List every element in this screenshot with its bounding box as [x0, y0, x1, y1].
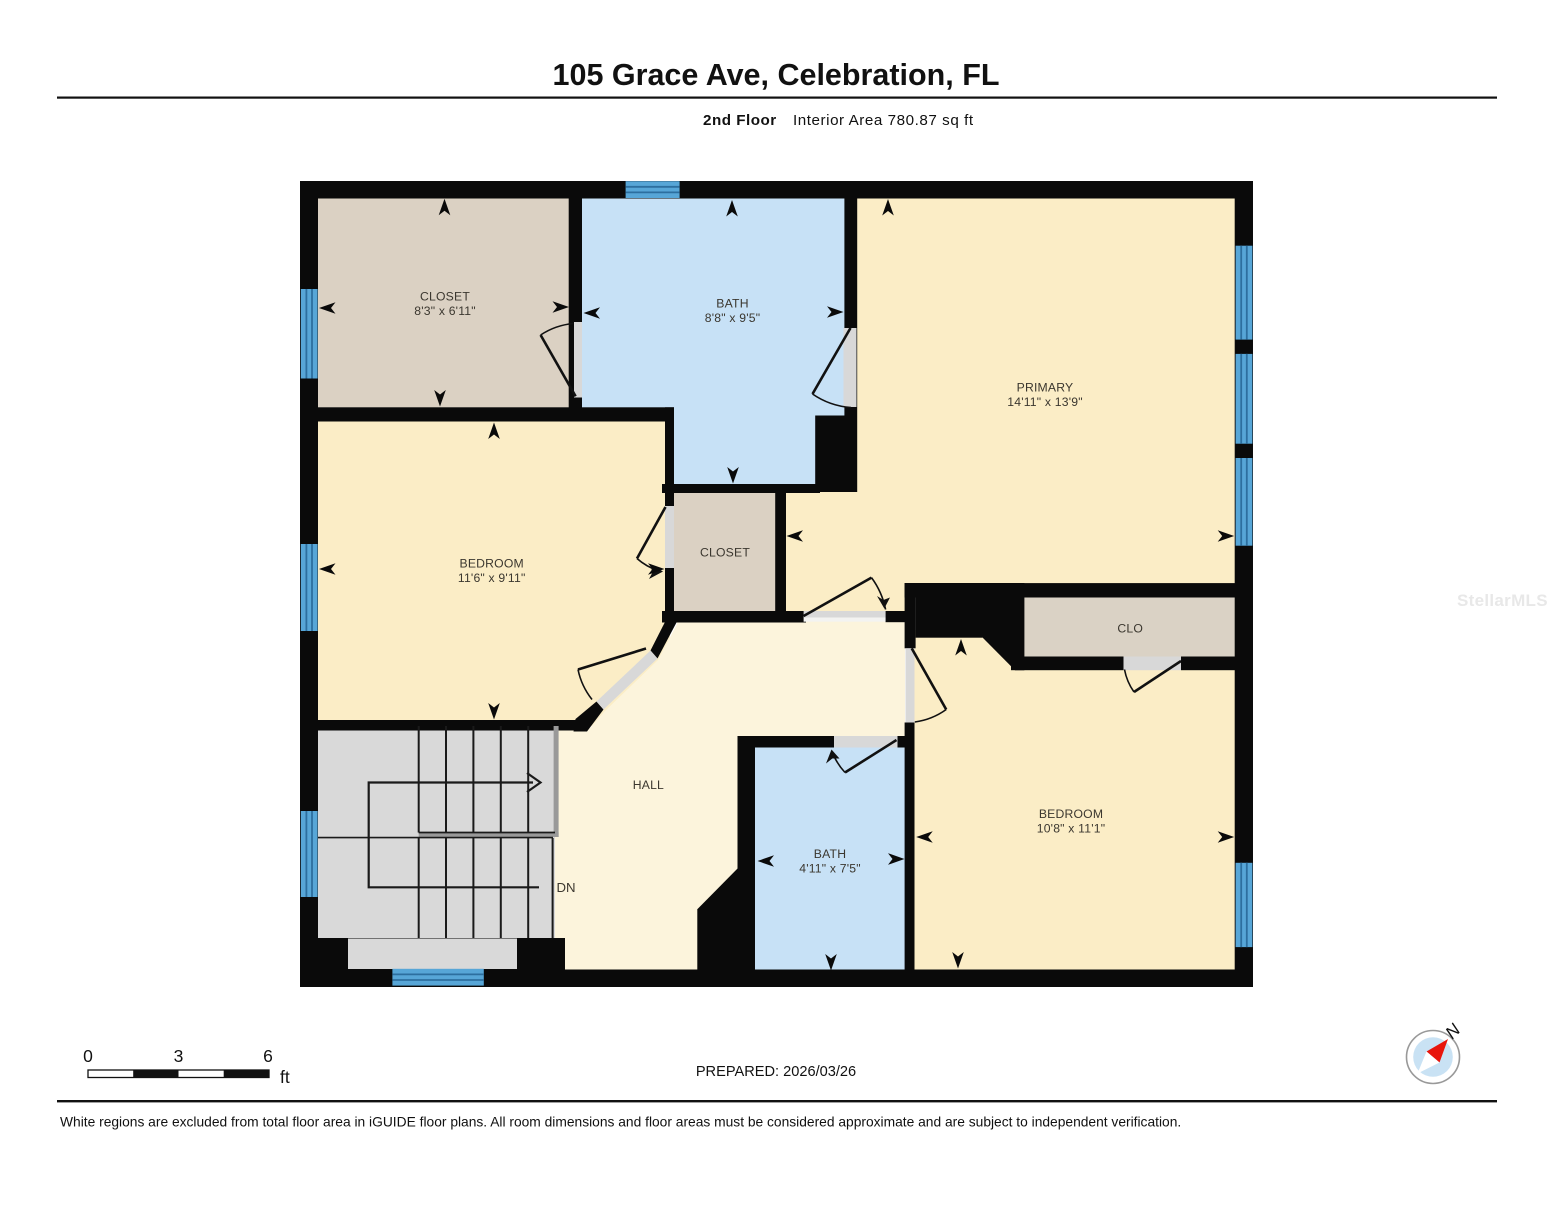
svg-text:3: 3	[174, 1046, 184, 1066]
svg-text:105 Grace Ave, Celebration, FL: 105 Grace Ave, Celebration, FL	[553, 58, 1000, 92]
svg-text:11'6" x 9'11": 11'6" x 9'11"	[458, 571, 526, 585]
svg-text:CLO: CLO	[1117, 622, 1143, 636]
svg-text:CLOSET: CLOSET	[700, 545, 750, 559]
svg-text:BEDROOM: BEDROOM	[460, 557, 524, 571]
svg-text:CLOSET: CLOSET	[420, 290, 470, 304]
svg-text:ft: ft	[280, 1067, 290, 1087]
svg-text:DN: DN	[557, 880, 576, 895]
svg-text:PREPARED: 2026/03/26: PREPARED: 2026/03/26	[696, 1064, 856, 1080]
svg-text:HALL: HALL	[633, 778, 664, 792]
svg-text:0: 0	[83, 1046, 93, 1066]
svg-text:BATH: BATH	[716, 297, 748, 311]
svg-text:2nd Floor: 2nd Floor	[703, 112, 777, 129]
svg-text:Interior Area 780.87 sq ft: Interior Area 780.87 sq ft	[793, 112, 974, 129]
svg-text:8'8" x 9'5": 8'8" x 9'5"	[705, 311, 761, 325]
svg-text:BATH: BATH	[814, 847, 846, 861]
svg-text:BEDROOM: BEDROOM	[1039, 807, 1103, 821]
svg-text:StellarMLS: StellarMLS	[1457, 591, 1548, 610]
svg-text:14'11" x 13'9": 14'11" x 13'9"	[1007, 395, 1083, 409]
svg-text:4'11" x 7'5": 4'11" x 7'5"	[799, 862, 861, 876]
svg-text:10'8" x 11'1": 10'8" x 11'1"	[1037, 822, 1106, 836]
svg-text:PRIMARY: PRIMARY	[1017, 380, 1074, 394]
svg-text:6: 6	[263, 1046, 273, 1066]
svg-text:White regions are excluded fro: White regions are excluded from total fl…	[60, 1115, 1181, 1130]
svg-text:8'3" x 6'11": 8'3" x 6'11"	[414, 304, 476, 318]
